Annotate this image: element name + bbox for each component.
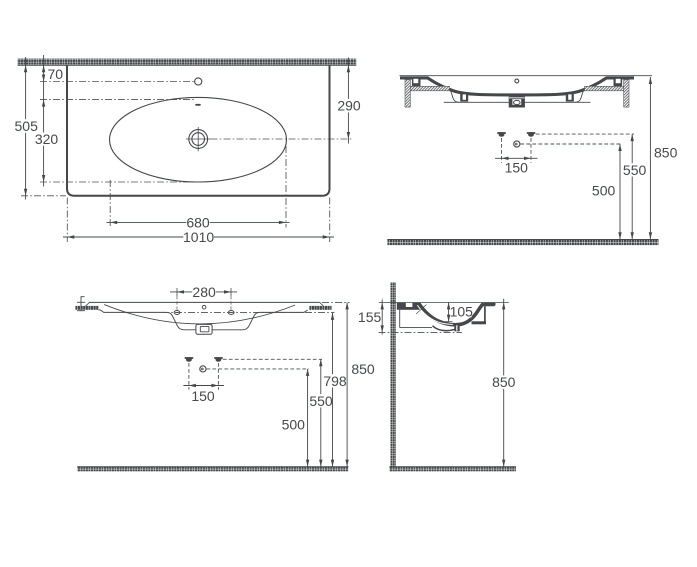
- svg-text:500: 500: [592, 183, 616, 199]
- svg-text:850: 850: [351, 361, 375, 377]
- svg-text:500: 500: [282, 417, 306, 433]
- svg-text:320: 320: [35, 131, 59, 147]
- svg-text:798: 798: [323, 373, 347, 389]
- svg-text:280: 280: [192, 284, 216, 300]
- svg-text:70: 70: [48, 66, 64, 82]
- svg-text:150: 150: [191, 388, 215, 404]
- svg-text:550: 550: [309, 393, 333, 409]
- svg-text:850: 850: [654, 145, 678, 161]
- svg-text:290: 290: [337, 98, 361, 114]
- svg-text:1010: 1010: [183, 229, 214, 245]
- svg-text:155: 155: [358, 309, 382, 325]
- svg-text:850: 850: [492, 374, 516, 390]
- svg-text:680: 680: [186, 215, 210, 231]
- svg-text:105: 105: [450, 303, 474, 319]
- svg-text:550: 550: [623, 162, 647, 178]
- svg-text:150: 150: [505, 160, 529, 176]
